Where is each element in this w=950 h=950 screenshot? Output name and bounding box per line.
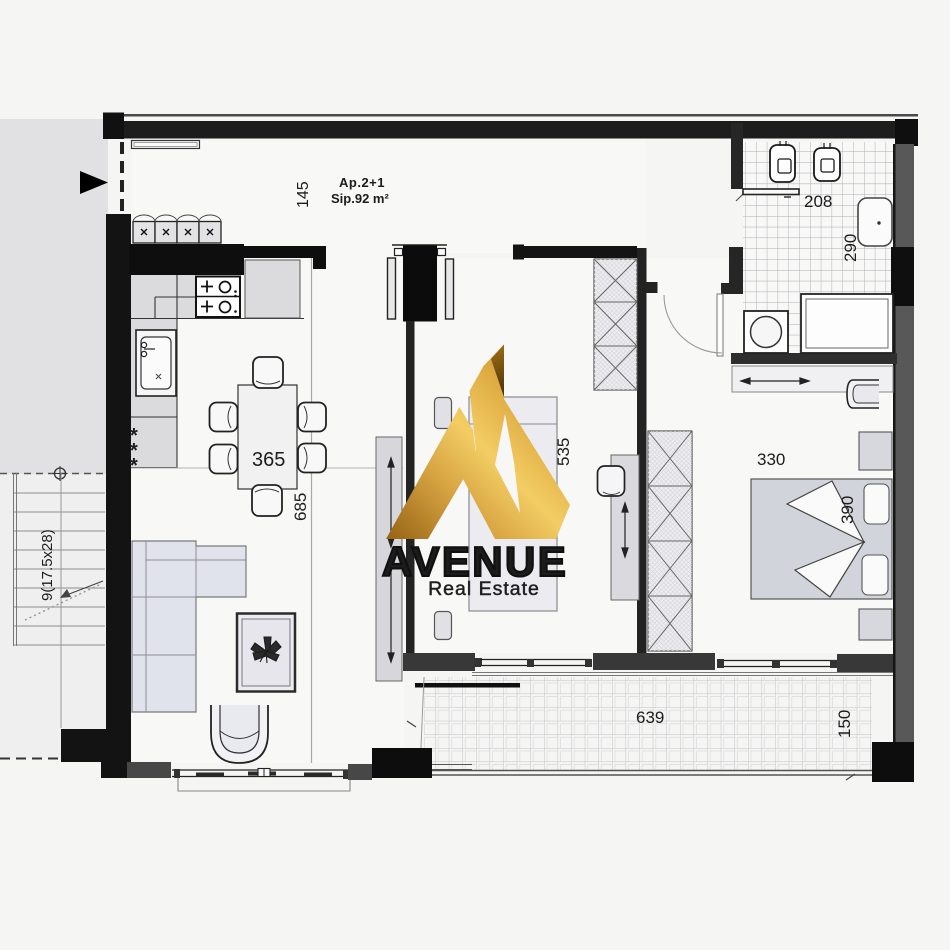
svg-text:535: 535: [554, 438, 573, 466]
svg-text:150: 150: [835, 710, 854, 738]
svg-text:330: 330: [757, 450, 785, 469]
svg-text:639: 639: [636, 708, 664, 727]
svg-text:Ap.2+1: Ap.2+1: [339, 175, 385, 190]
svg-text:290: 290: [841, 234, 860, 262]
svg-text:365: 365: [252, 449, 285, 471]
svg-text:Real Estate: Real Estate: [428, 578, 540, 600]
svg-text:390: 390: [838, 496, 857, 524]
svg-text:9(17.5x28): 9(17.5x28): [39, 529, 56, 601]
svg-text:208: 208: [804, 192, 832, 211]
svg-text:685: 685: [291, 493, 310, 521]
svg-text:Sip.92 m²: Sip.92 m²: [331, 191, 389, 206]
svg-text:*: *: [130, 455, 138, 477]
svg-text:145: 145: [295, 181, 312, 208]
